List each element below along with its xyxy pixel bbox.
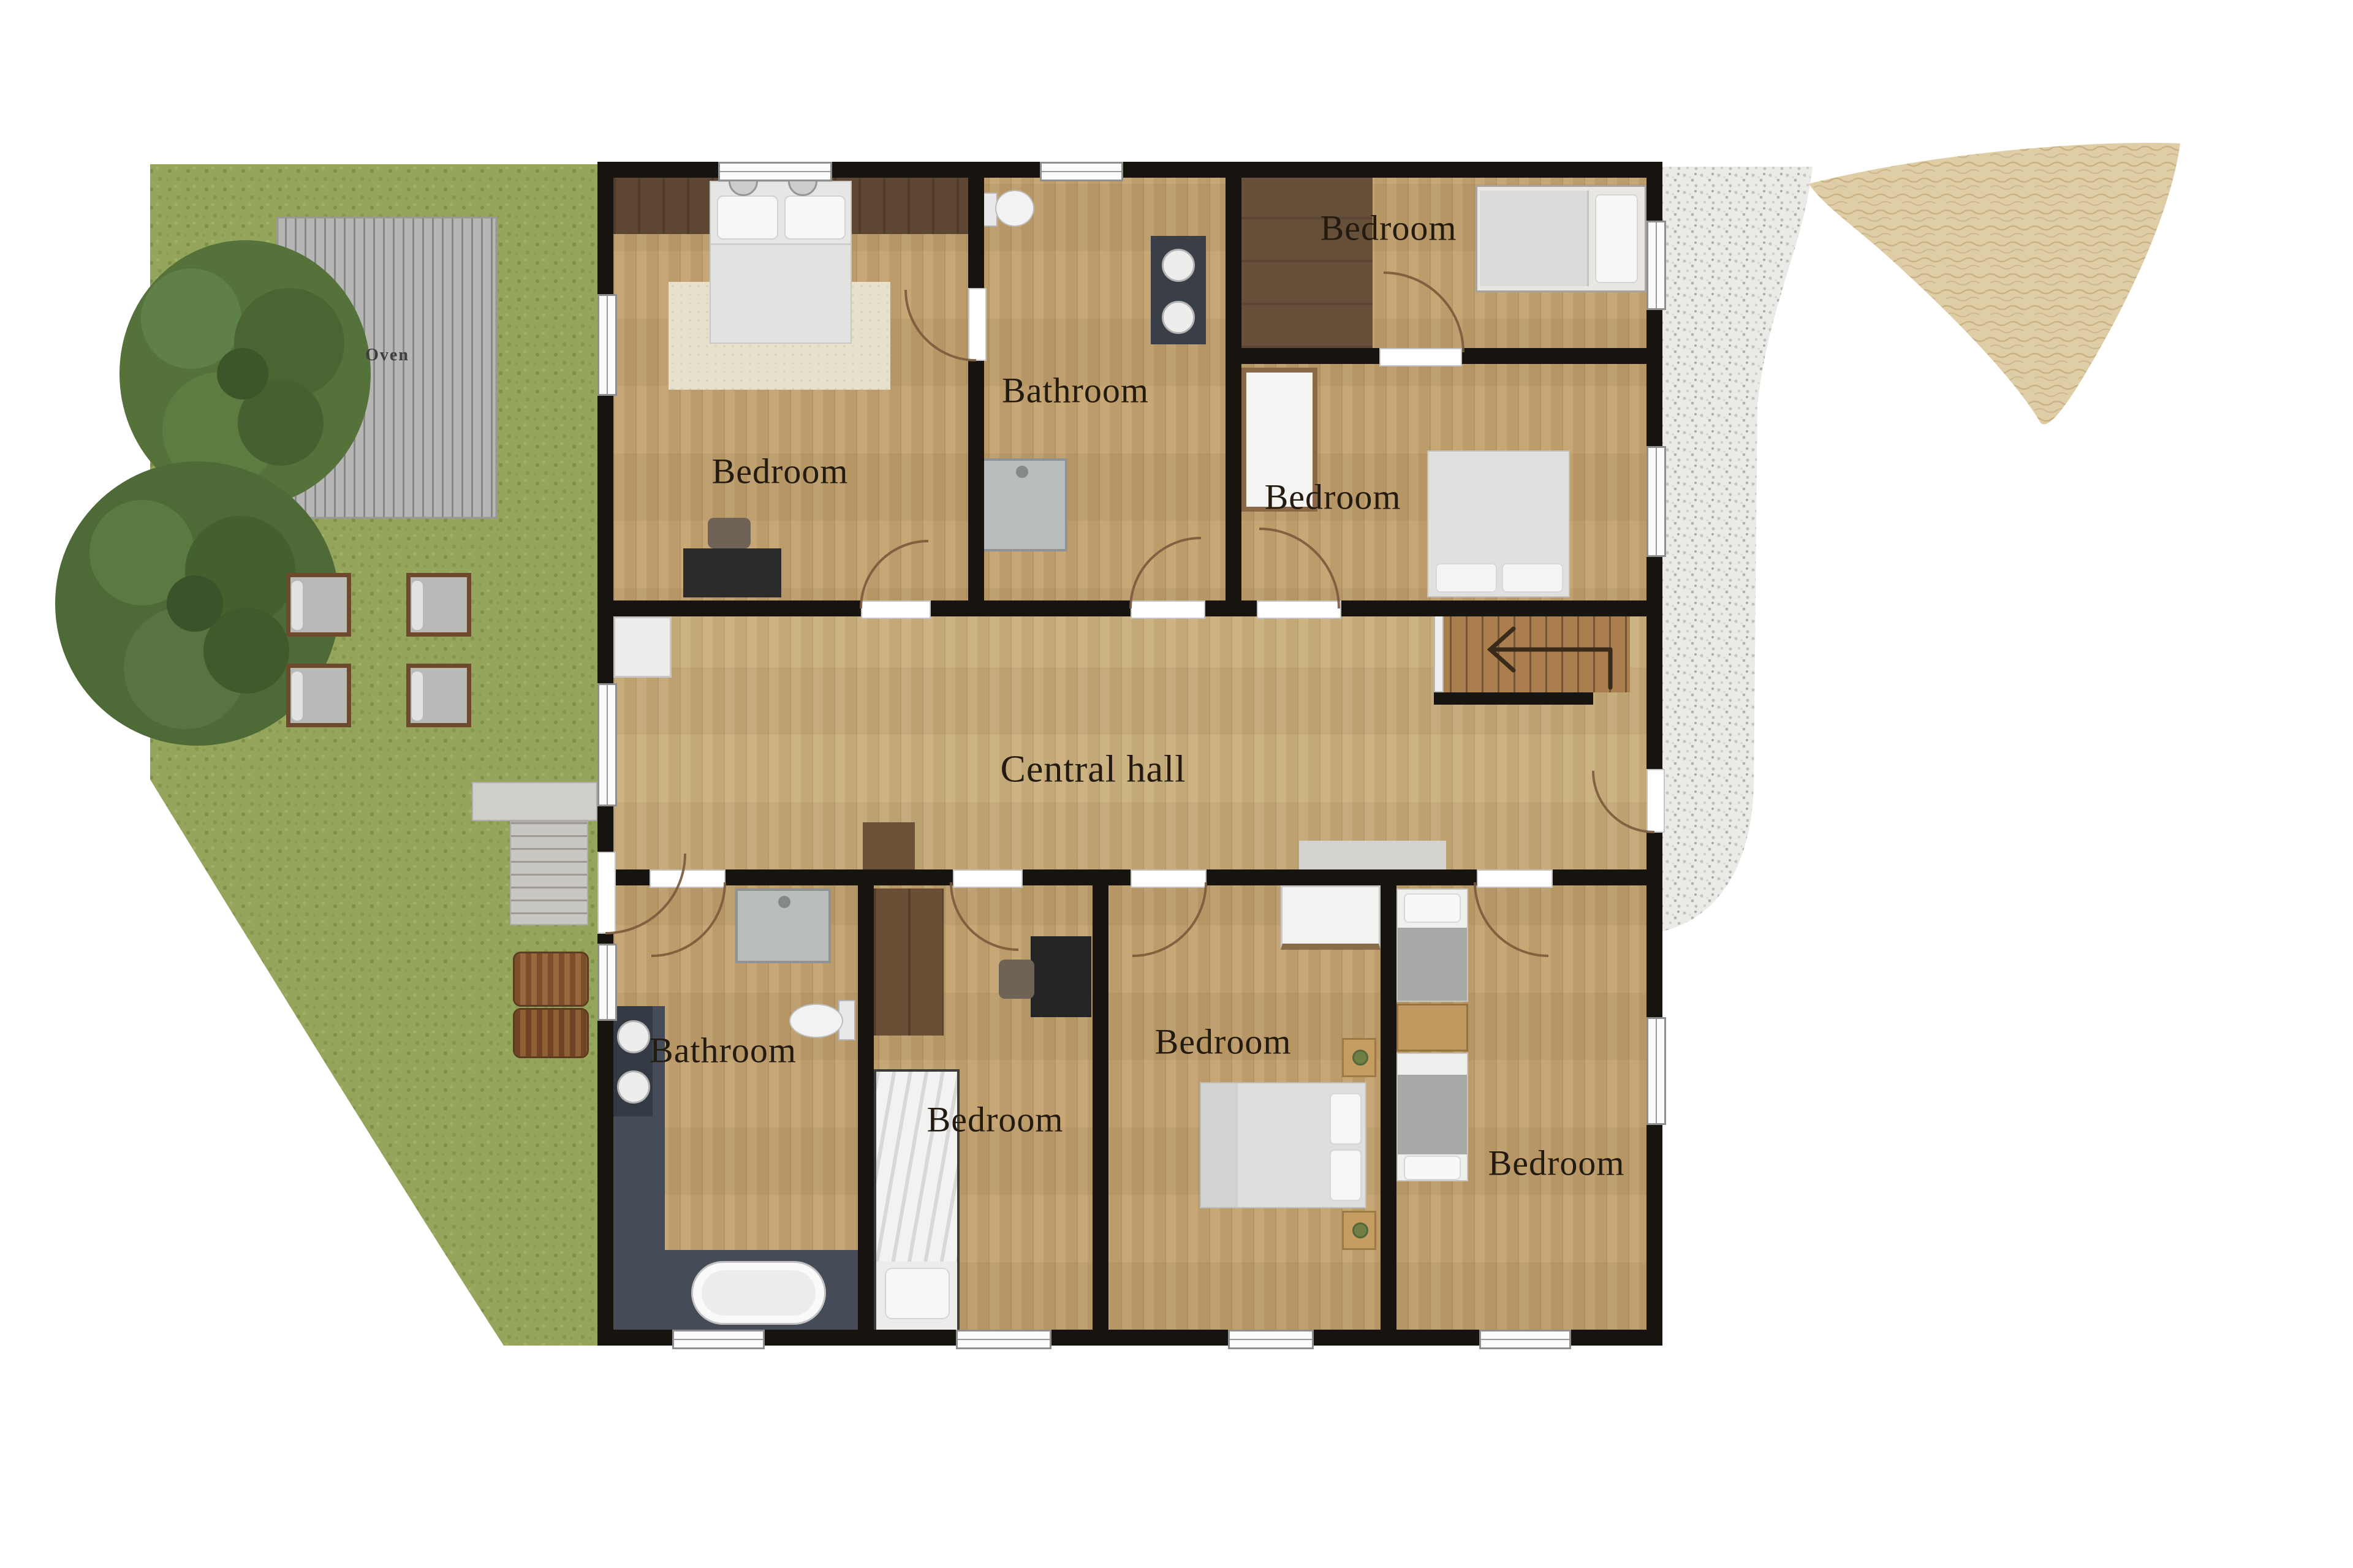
door-swing-arc: [906, 290, 976, 360]
room-label-bedroom-double: Bedroom: [1155, 1021, 1292, 1062]
room-label-bedroom-small: Bedroom: [927, 1099, 1064, 1140]
room-label-bedroom-master: Bedroom: [712, 451, 849, 492]
door-swing-arc: [1132, 882, 1206, 956]
room-label-bedroom-topright: Bedroom: [1320, 208, 1457, 249]
floor-plan: Oven Bedroom Bathroom Bedroom Bedroom Ce…: [0, 0, 2353, 1568]
door-swing-arc: [1593, 771, 1654, 832]
room-label-bedroom-right: Bedroom: [1488, 1143, 1625, 1184]
door-swing-arc: [1384, 273, 1463, 352]
door-swing-arc: [651, 882, 725, 956]
door-swing-arc: [1259, 529, 1339, 608]
door-swing-arc: [1475, 882, 1548, 956]
room-label-oven: Oven: [365, 346, 409, 365]
room-label-bedroom-midright: Bedroom: [1265, 477, 1401, 518]
door-swing-arc: [605, 854, 685, 933]
room-label-bathroom-bottom: Bathroom: [650, 1030, 797, 1071]
room-label-bathroom-top: Bathroom: [1002, 370, 1149, 411]
door-swing-arc: [1131, 538, 1201, 608]
door-swing-arc: [861, 541, 928, 608]
room-label-central-hall: Central hall: [1001, 748, 1186, 792]
stairs-direction-arrow: [1490, 629, 1610, 687]
door-swing-arc: [951, 882, 1018, 950]
